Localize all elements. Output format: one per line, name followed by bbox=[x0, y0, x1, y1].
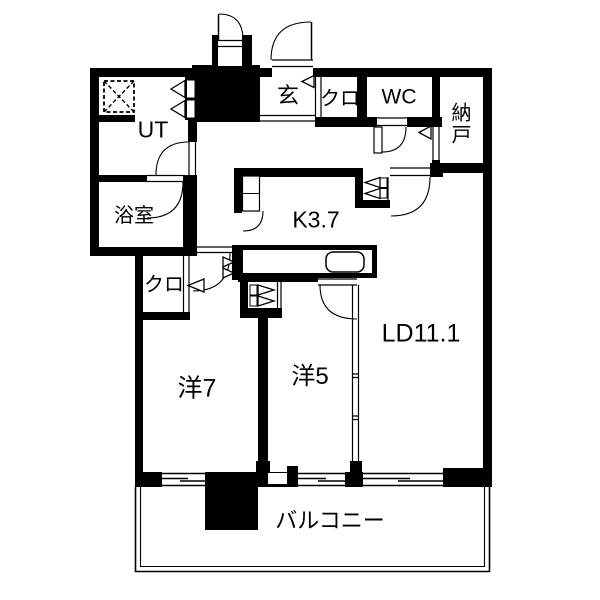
wall-right bbox=[483, 68, 492, 487]
wall-kitchen-left bbox=[234, 168, 242, 213]
ut-bifold-pocket-2 bbox=[187, 100, 196, 118]
wall-bath-right bbox=[183, 175, 197, 256]
room-label-balcony: バルコニー bbox=[275, 510, 385, 532]
pillar bbox=[205, 472, 258, 530]
wall-left-upper bbox=[90, 68, 99, 256]
wall-kuro-wc-bottom bbox=[315, 117, 377, 127]
porch-alcove bbox=[218, 35, 242, 66]
wc-door-leaf bbox=[374, 127, 382, 153]
wall-ut-right bbox=[188, 120, 197, 142]
wall-nando-left-upper bbox=[432, 72, 440, 125]
kitchen-sink bbox=[326, 252, 364, 272]
room-label-western7: 洋7 bbox=[178, 377, 217, 402]
pipe-shaft bbox=[192, 65, 260, 122]
ld-closet-pocket bbox=[380, 178, 387, 188]
room-label-kitchen: K3.7 bbox=[292, 209, 339, 232]
wall-y5closet-bottom bbox=[240, 308, 282, 318]
wall-top-right bbox=[313, 68, 492, 77]
room-label-western5: 洋5 bbox=[291, 365, 328, 389]
room-label-nando: 納戸 bbox=[449, 102, 469, 146]
window-ld bbox=[363, 472, 443, 487]
wall-bottom-1 bbox=[135, 472, 162, 487]
room-label-wc: WC bbox=[382, 87, 417, 108]
windows bbox=[162, 472, 443, 487]
y5-closet-pocket bbox=[250, 285, 257, 295]
room-label-living-dining: LD11.1 bbox=[382, 322, 461, 347]
window-yo5 bbox=[298, 472, 345, 487]
wall-counter-bottom bbox=[238, 272, 318, 282]
wall-bath-top bbox=[99, 175, 147, 182]
wall-ld-closet-bottom bbox=[355, 200, 390, 208]
room-label-closet-entry: クロ bbox=[320, 89, 360, 109]
room-label-genkan: 玄 bbox=[277, 85, 299, 107]
wall-closet-hall-bottom bbox=[135, 312, 190, 320]
ld-closet-pocket bbox=[380, 189, 387, 199]
y5-closet-pocket bbox=[250, 296, 257, 306]
room-label-bathroom: 浴室 bbox=[114, 206, 154, 226]
wall-yo7-yo5-divider bbox=[258, 318, 268, 465]
wall-bottom-step bbox=[287, 466, 298, 487]
wall-partition-foot bbox=[350, 461, 362, 472]
room-label-closet-hall: クロ bbox=[144, 275, 184, 295]
wall-bottom-corner bbox=[443, 468, 492, 487]
wall-stub-nando bbox=[430, 163, 443, 177]
room-label-ut: UT bbox=[138, 119, 169, 142]
wall-ut-stub bbox=[90, 115, 135, 122]
bottom-notch bbox=[268, 473, 287, 484]
ut-bifold-pocket-1 bbox=[187, 80, 196, 98]
pillar-small bbox=[345, 472, 363, 487]
wall-left-lower bbox=[135, 247, 143, 487]
floor-plan: 玄 クロ WC 納戸 UT 浴室 K3.7 クロ 洋7 洋5 LD11.1 バル… bbox=[0, 0, 600, 600]
window-yo7 bbox=[162, 472, 205, 487]
wall-y5closet-left bbox=[240, 280, 248, 312]
wc-door-gap bbox=[377, 118, 407, 126]
